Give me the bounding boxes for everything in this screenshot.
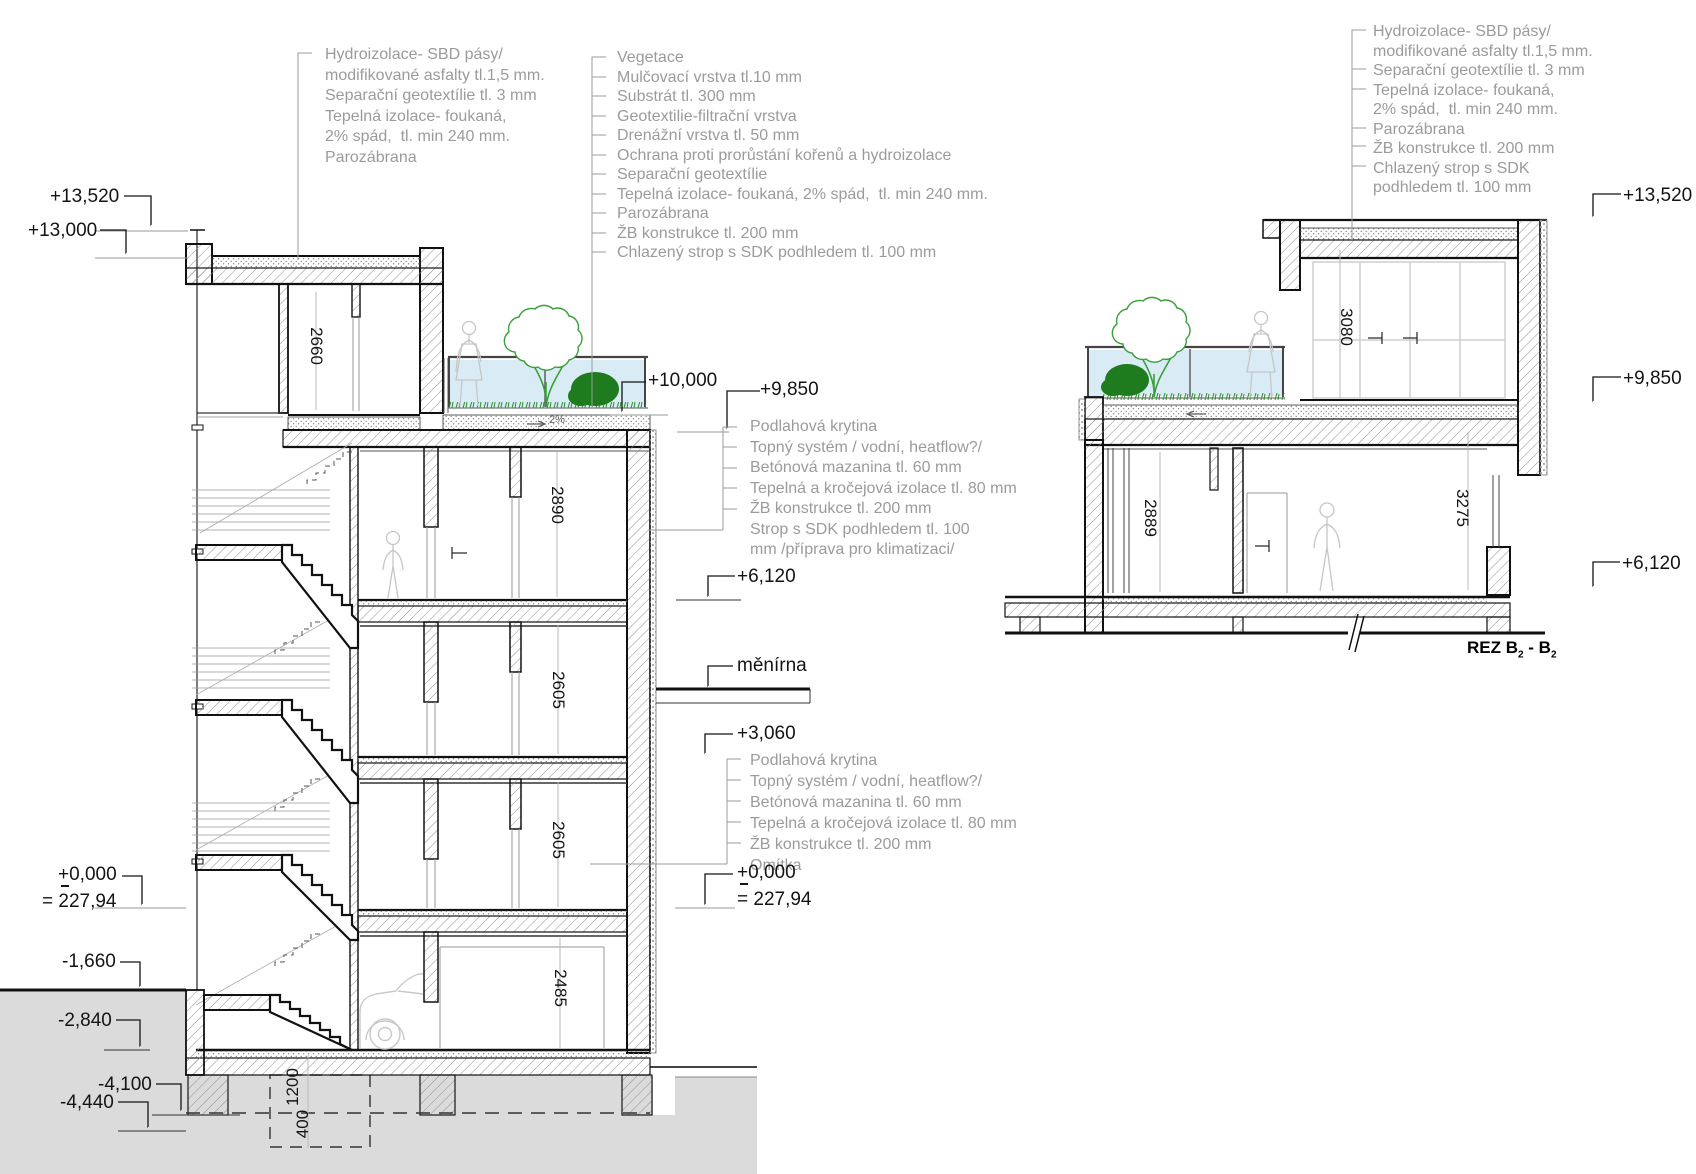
- level-label: +13,000: [28, 220, 97, 242]
- annotation-line: modifikované asfalty tl.1,5 mm.: [1373, 42, 1593, 62]
- level-label: -4,440: [60, 1092, 114, 1114]
- annotation-line: Ochrana proti prorůstání kořenů a hydroi…: [617, 146, 988, 166]
- annotation-line: Separační geotextílie tl. 3 mm: [325, 86, 545, 107]
- annotation-block-floor-lower: Podlahová krytinaTopný systém / vodní, h…: [750, 750, 1017, 876]
- annotation-line: modifikované asfalty tl.1,5 mm.: [325, 66, 545, 87]
- annotation-line: Hydroizolace- SBD pásy/: [1373, 22, 1593, 42]
- architectural-section-sheet: Hydroizolace- SBD pásy/modifikované asfa…: [0, 0, 1696, 1174]
- annotation-block-roof-right: Hydroizolace- SBD pásy/modifikované asfa…: [1373, 22, 1593, 198]
- annotation-line: Vegetace: [617, 48, 988, 68]
- dim-room-height: 2890: [547, 460, 567, 550]
- annotation-line: Drenážní vrstva tl. 50 mm: [617, 126, 988, 146]
- annotation-line: Betónová mazanina tl. 60 mm: [750, 792, 1017, 813]
- annotation-line: Hydroizolace- SBD pásy/: [325, 45, 545, 66]
- dim-room-height: 2889: [1140, 473, 1160, 563]
- annotation-line: ŽB konstrukce tl. 200 mm: [617, 224, 988, 244]
- staircase: [192, 443, 358, 1050]
- level-label: +6,120: [737, 566, 796, 588]
- annotation-line: 2% spád, tl. min 240 mm.: [325, 127, 545, 148]
- level-label: +9,850: [1623, 368, 1682, 390]
- dim-room-height: 2605: [548, 795, 568, 885]
- annotation-line: Betónová mazanina tl. 60 mm: [750, 458, 1017, 479]
- level-label: +13,520: [50, 186, 119, 208]
- level-label: +0,000: [737, 862, 796, 884]
- annotation-line: Tepelná izolace- foukaná,: [1373, 81, 1593, 101]
- level-label: +13,520: [1623, 185, 1692, 207]
- section-title: REZ B2 - B2: [1467, 638, 1557, 660]
- annotation-line: ŽB konstrukce tl. 200 mm: [750, 499, 1017, 520]
- annotation-line: Separační geotextílie tl. 3 mm: [1373, 61, 1593, 81]
- canopy-menirna: [656, 689, 810, 703]
- figure-man-room-right: [1314, 503, 1340, 591]
- level-label: -1,660: [62, 951, 116, 973]
- room-label-menirna: měnírna: [737, 655, 807, 677]
- annotation-block-roof-left: Hydroizolace- SBD pásy/modifikované asfa…: [325, 45, 545, 168]
- annotation-line: ŽB konstrukce tl. 200 mm: [1373, 139, 1593, 159]
- annotation-block-green-roof: VegetaceMulčovací vrstva tl.10 mmSubstrá…: [617, 48, 988, 263]
- annotation-line: mm /příprava pro klimatizaci/: [750, 540, 1017, 561]
- level-label: +3,060: [737, 723, 796, 745]
- annotation-line: Separační geotextílie: [617, 165, 988, 185]
- dim-room-height: 2660: [306, 301, 326, 391]
- dim-room-height: 2605: [548, 645, 568, 735]
- dim-room-height: 3080: [1336, 282, 1356, 372]
- annotation-line: Substrát tl. 300 mm: [617, 87, 988, 107]
- slope-label: 2%: [549, 414, 565, 426]
- dim-room-height: 3275: [1452, 463, 1472, 553]
- annotation-line: 2% spád, tl. min 240 mm.: [1373, 100, 1593, 120]
- annotation-line: Tepelná a kročejová izolace tl. 80 mm: [750, 813, 1017, 834]
- floor-slabs: [358, 600, 627, 936]
- level-label: +0,000: [58, 864, 117, 886]
- annotation-line: Podlahová krytina: [750, 417, 1017, 438]
- annotation-line: Topný systém / vodní, heatflow?/: [750, 771, 1017, 792]
- annotation-line: ŽB konstrukce tl. 200 mm: [750, 834, 1017, 855]
- garage-door: [440, 947, 604, 1048]
- dim-foundation: 400: [293, 1079, 313, 1169]
- annotation-block-floor-upper: Podlahová krytinaTopný systém / vodní, h…: [750, 417, 1017, 561]
- annotation-line: Tepelná a kročejová izolace tl. 80 mm: [750, 479, 1017, 500]
- annotation-line: Topný systém / vodní, heatflow?/: [750, 438, 1017, 459]
- level-label: -2,840: [58, 1010, 112, 1032]
- annotation-line: Chlazený strop s SDK podhledem tl. 100 m…: [617, 243, 988, 263]
- left-building-section: [186, 230, 810, 1075]
- annotation-line: Tepelná izolace- foukaná,: [325, 107, 545, 128]
- annotation-line: Tepelná izolace- foukaná, 2% spád, tl. m…: [617, 185, 988, 205]
- annotation-line: Mulčovací vrstva tl.10 mm: [617, 68, 988, 88]
- plus-minus-dash: [740, 883, 748, 885]
- level-label: +10,000: [648, 370, 717, 392]
- level-label: +9,850: [760, 379, 819, 401]
- level-label: = 227,94: [737, 889, 812, 911]
- car-silhouette: [360, 974, 423, 1049]
- dim-room-height: 2485: [550, 943, 570, 1033]
- plus-minus-dash: [61, 885, 69, 887]
- right-building-section: [1005, 220, 1547, 652]
- level-label: = 227,94: [42, 891, 117, 913]
- level-label: +6,120: [1622, 553, 1681, 575]
- annotation-line: podhledem tl. 100 mm: [1373, 178, 1593, 198]
- annotation-line: Parozábrana: [1373, 120, 1593, 140]
- annotation-line: Parozábrana: [325, 148, 545, 169]
- annotation-line: Podlahová krytina: [750, 750, 1017, 771]
- annotation-line: Geotextilie-filtrační vrstva: [617, 107, 988, 127]
- annotation-line: Chlazený strop s SDK: [1373, 159, 1593, 179]
- annotation-line: Parozábrana: [617, 204, 988, 224]
- annotation-line: Strop s SDK podhledem tl. 100: [750, 520, 1017, 541]
- figure-man-room: [383, 532, 403, 599]
